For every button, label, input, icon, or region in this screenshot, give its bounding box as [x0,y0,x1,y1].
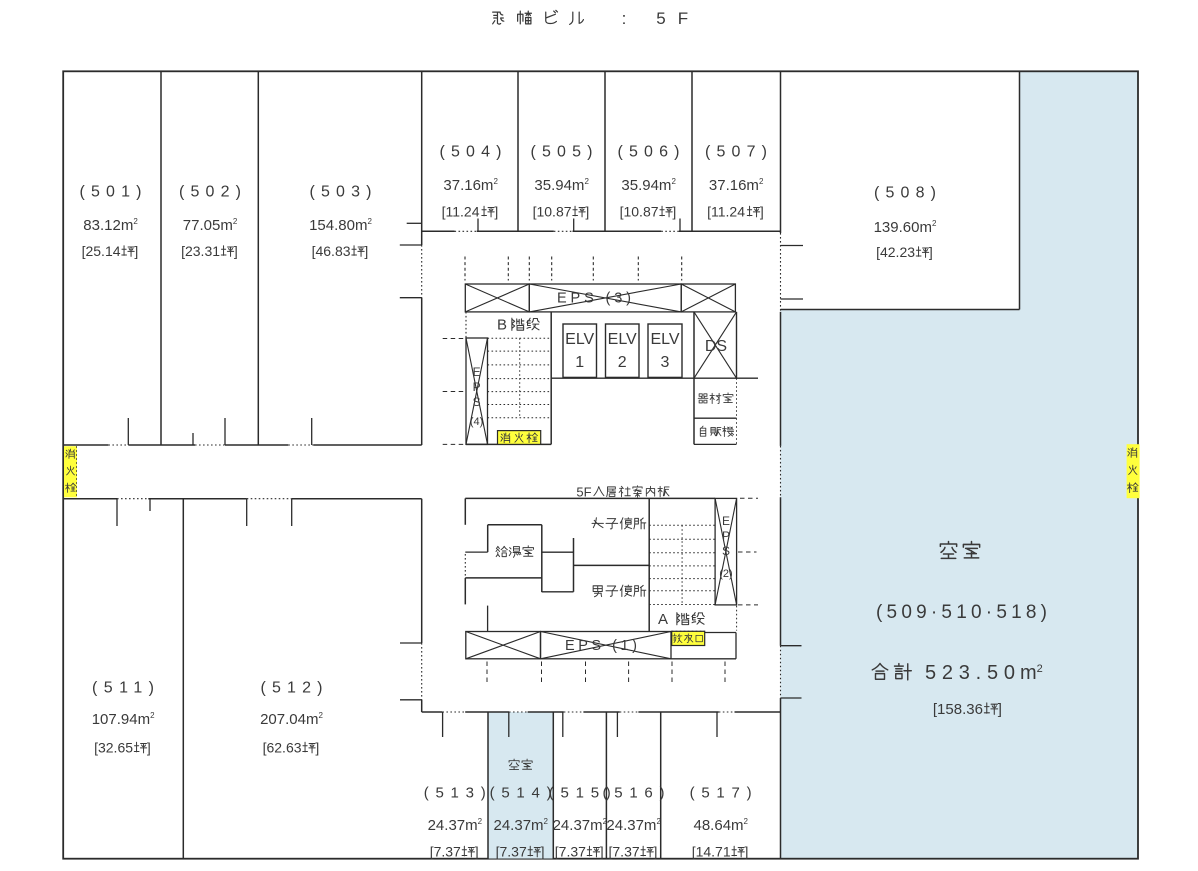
svg-text:(506): (506) [618,144,680,161]
svg-text:77.05m2: 77.05m2 [183,217,238,234]
svg-text:5F: 5F [576,485,591,500]
svg-text:(511): (511) [92,680,154,697]
svg-text:P: P [722,529,730,543]
svg-text:]: ] [134,243,138,259]
svg-text:[42.23: [42.23 [876,244,915,260]
svg-text:(515): (515) [549,784,611,801]
svg-text:]: ] [929,244,933,260]
svg-text:S: S [722,544,730,558]
svg-text:[7.37: [7.37 [609,843,640,859]
svg-text:ELV: ELV [650,331,679,348]
svg-text:48.64m2: 48.64m2 [694,817,749,834]
svg-text:S: S [473,395,481,409]
svg-text:]: ] [475,843,479,859]
svg-text:E: E [473,365,481,379]
svg-text:EPS (3): EPS (3) [557,291,631,307]
svg-text:[23.31: [23.31 [181,243,220,259]
svg-text:ELV: ELV [565,331,594,348]
svg-text:DS: DS [705,338,727,355]
svg-text:[32.65: [32.65 [94,739,133,755]
svg-text:(509·510·518): (509·510·518) [876,602,1047,623]
svg-text:(504): (504) [440,144,502,161]
svg-text:ELV: ELV [608,331,637,348]
svg-text:24.37m2: 24.37m2 [606,817,661,834]
svg-text:[7.37: [7.37 [496,843,527,859]
svg-text:(512): (512) [261,680,323,697]
svg-text:1: 1 [575,354,584,371]
svg-text:35.94m2: 35.94m2 [534,177,589,194]
svg-text:5: 5 [656,9,665,28]
svg-text:]: ] [600,843,604,859]
svg-text:[7.37: [7.37 [430,843,461,859]
svg-text:[46.83: [46.83 [312,243,351,259]
svg-text:]: ] [745,843,749,859]
svg-text::: : [622,9,627,28]
svg-text:(2): (2) [719,568,732,580]
svg-text:]: ] [315,739,319,755]
svg-text:E: E [722,514,730,528]
svg-text:B: B [497,317,507,334]
svg-text:24.37m2: 24.37m2 [494,817,549,834]
svg-text:P: P [473,380,481,394]
svg-text:]: ] [364,243,368,259]
svg-text:83.12m2: 83.12m2 [83,217,138,234]
svg-text:[11.24: [11.24 [707,203,745,219]
svg-text:[10.87: [10.87 [533,203,572,219]
svg-text:(507): (507) [705,144,767,161]
svg-text:(502): (502) [179,184,241,201]
svg-text:(503): (503) [310,184,372,201]
svg-text:(516): (516) [603,784,665,801]
svg-text:]: ] [494,203,498,219]
svg-text:3: 3 [661,354,670,371]
svg-text:2: 2 [618,354,627,371]
svg-text:207.04m2: 207.04m2 [260,711,323,728]
svg-text:37.16m2: 37.16m2 [709,177,764,194]
svg-text:139.60m2: 139.60m2 [874,219,937,236]
svg-text:A: A [658,611,668,628]
svg-text:(4): (4) [470,416,483,428]
svg-text:[11.24: [11.24 [442,203,480,219]
svg-text:[14.71: [14.71 [692,843,731,859]
svg-text:]: ] [654,843,658,859]
svg-text:24.37m2: 24.37m2 [428,817,483,834]
svg-text:154.80m2: 154.80m2 [309,217,372,234]
svg-text:24.37m2: 24.37m2 [553,817,608,834]
svg-text:]: ] [998,701,1002,718]
svg-text:]: ] [234,243,238,259]
svg-text:]: ] [760,203,764,219]
svg-text:[10.87: [10.87 [620,203,659,219]
svg-text:F: F [678,9,688,28]
svg-text:35.94m2: 35.94m2 [621,177,676,194]
svg-text:(513): (513) [424,784,486,801]
svg-text:107.94m2: 107.94m2 [92,711,155,728]
svg-text:(505): (505) [531,144,593,161]
svg-text:]: ] [672,203,676,219]
svg-text:(508): (508) [874,185,936,202]
svg-text:]: ] [541,843,545,859]
svg-text:]: ] [147,739,151,755]
svg-text:[25.14: [25.14 [82,243,121,259]
svg-text:(517): (517) [690,784,752,801]
svg-text:[7.37: [7.37 [555,843,586,859]
svg-text:(501): (501) [80,184,142,201]
svg-text:37.16m2: 37.16m2 [443,177,498,194]
svg-text:[62.63: [62.63 [263,739,302,755]
svg-text:[158.36: [158.36 [933,701,983,718]
svg-text:]: ] [585,203,589,219]
